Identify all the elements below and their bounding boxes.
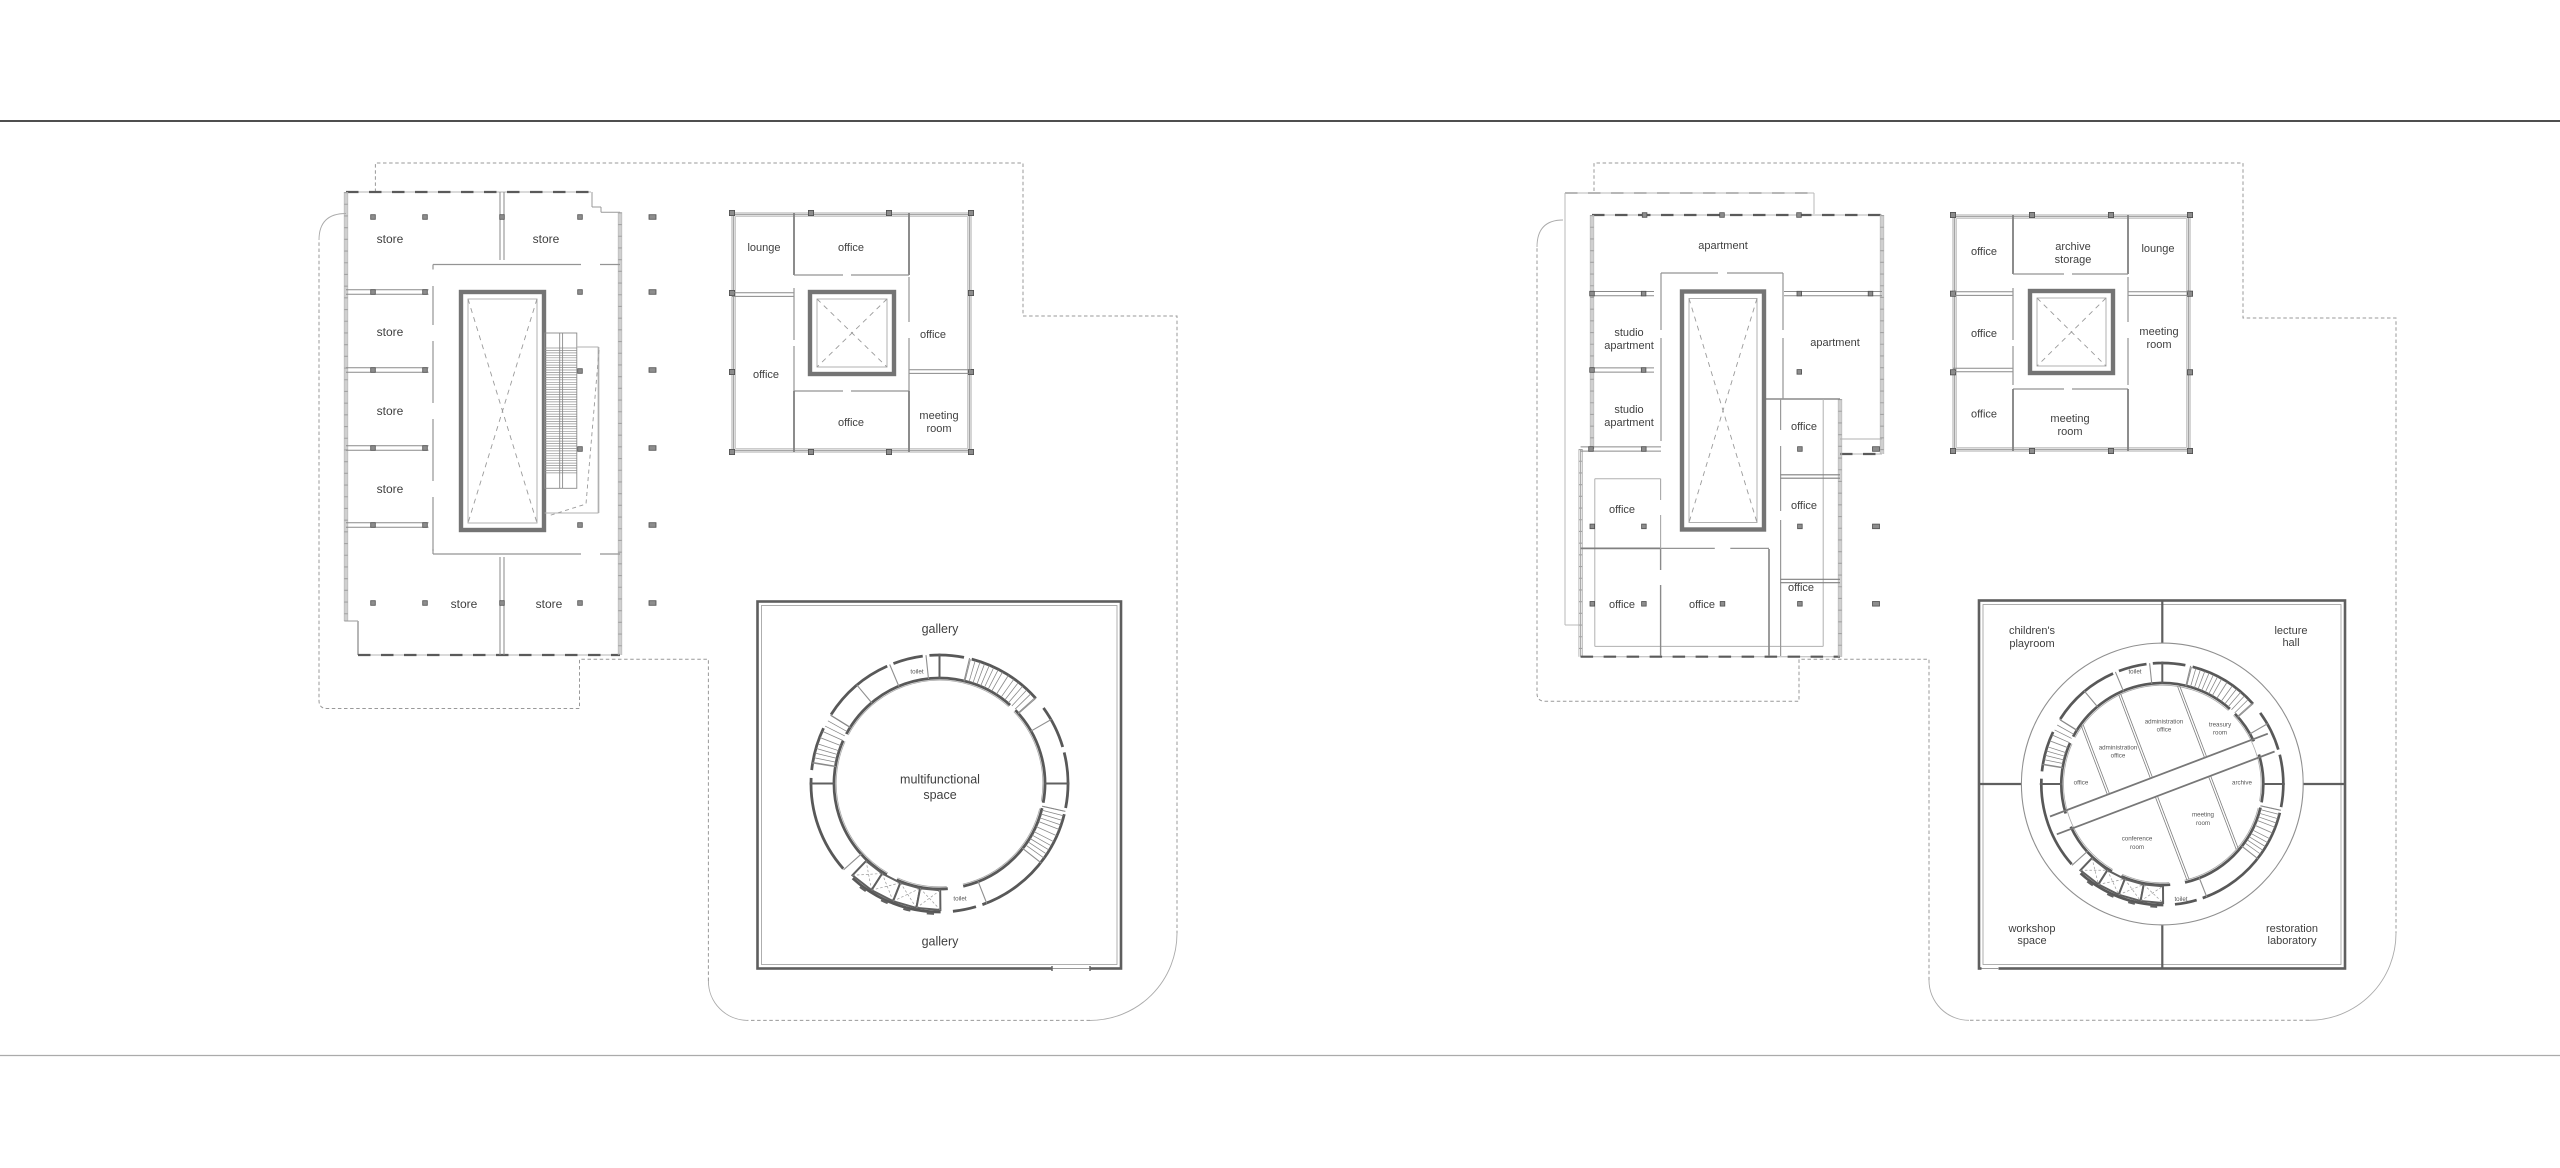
svg-text:lecture: lecture bbox=[2274, 625, 2307, 637]
svg-text:office: office bbox=[1791, 421, 1817, 433]
svg-text:meeting: meeting bbox=[2192, 812, 2215, 819]
svg-text:gallery: gallery bbox=[922, 935, 960, 949]
svg-text:store: store bbox=[533, 232, 560, 246]
svg-text:office: office bbox=[1609, 599, 1635, 611]
svg-text:treasury: treasury bbox=[2209, 722, 2232, 729]
svg-text:space: space bbox=[923, 788, 956, 802]
svg-text:storage: storage bbox=[2055, 254, 2092, 266]
svg-text:administration: administration bbox=[2145, 719, 2184, 726]
svg-text:multifunctional: multifunctional bbox=[900, 773, 980, 787]
svg-text:studio: studio bbox=[1614, 327, 1643, 339]
svg-text:room: room bbox=[2146, 339, 2171, 351]
svg-text:room: room bbox=[2057, 426, 2082, 438]
svg-text:store: store bbox=[377, 325, 404, 339]
svg-text:office: office bbox=[1791, 500, 1817, 512]
svg-text:office: office bbox=[920, 329, 946, 341]
svg-text:store: store bbox=[377, 404, 404, 418]
svg-text:hall: hall bbox=[2282, 637, 2299, 649]
svg-text:administration: administration bbox=[2099, 745, 2138, 752]
svg-text:store: store bbox=[536, 597, 563, 611]
svg-text:room: room bbox=[926, 423, 951, 435]
svg-text:office: office bbox=[1609, 504, 1635, 516]
svg-text:children's: children's bbox=[2009, 625, 2056, 637]
svg-text:restoration: restoration bbox=[2266, 923, 2318, 935]
svg-text:conference: conference bbox=[2122, 836, 2153, 843]
svg-text:office: office bbox=[2157, 727, 2172, 734]
svg-text:apartment: apartment bbox=[1698, 240, 1748, 252]
svg-text:toilet: toilet bbox=[953, 896, 967, 903]
svg-text:office: office bbox=[1689, 599, 1715, 611]
svg-text:space: space bbox=[2017, 935, 2046, 947]
svg-text:office: office bbox=[1788, 582, 1814, 594]
svg-text:lounge: lounge bbox=[747, 242, 780, 254]
svg-text:apartment: apartment bbox=[1604, 417, 1654, 429]
svg-text:room: room bbox=[2130, 844, 2144, 851]
svg-text:room: room bbox=[2213, 730, 2227, 737]
svg-text:office: office bbox=[1971, 409, 1997, 421]
svg-text:store: store bbox=[451, 597, 478, 611]
svg-text:store: store bbox=[377, 482, 404, 496]
svg-text:office: office bbox=[1971, 246, 1997, 258]
svg-text:toilet: toilet bbox=[2174, 896, 2187, 903]
svg-text:office: office bbox=[838, 242, 864, 254]
svg-text:apartment: apartment bbox=[1604, 340, 1654, 352]
svg-text:office: office bbox=[838, 417, 864, 429]
svg-text:meeting: meeting bbox=[2139, 326, 2178, 338]
svg-text:store: store bbox=[377, 232, 404, 246]
svg-text:archive: archive bbox=[2232, 780, 2253, 787]
svg-text:meeting: meeting bbox=[2050, 413, 2089, 425]
svg-text:office: office bbox=[1971, 328, 1997, 340]
svg-text:meeting: meeting bbox=[919, 410, 958, 422]
svg-text:studio: studio bbox=[1614, 404, 1643, 416]
svg-text:toilet: toilet bbox=[910, 669, 924, 676]
svg-text:office: office bbox=[2074, 780, 2089, 787]
svg-text:toilet: toilet bbox=[2128, 669, 2141, 676]
svg-text:archive: archive bbox=[2055, 241, 2090, 253]
svg-text:laboratory: laboratory bbox=[2268, 935, 2317, 947]
svg-text:office: office bbox=[2111, 753, 2126, 760]
svg-text:lounge: lounge bbox=[2141, 243, 2174, 255]
svg-text:gallery: gallery bbox=[922, 622, 960, 636]
svg-text:workshop: workshop bbox=[2007, 923, 2055, 935]
svg-text:office: office bbox=[753, 369, 779, 381]
svg-text:room: room bbox=[2196, 820, 2210, 827]
svg-text:playroom: playroom bbox=[2009, 638, 2054, 650]
svg-text:apartment: apartment bbox=[1810, 337, 1860, 349]
